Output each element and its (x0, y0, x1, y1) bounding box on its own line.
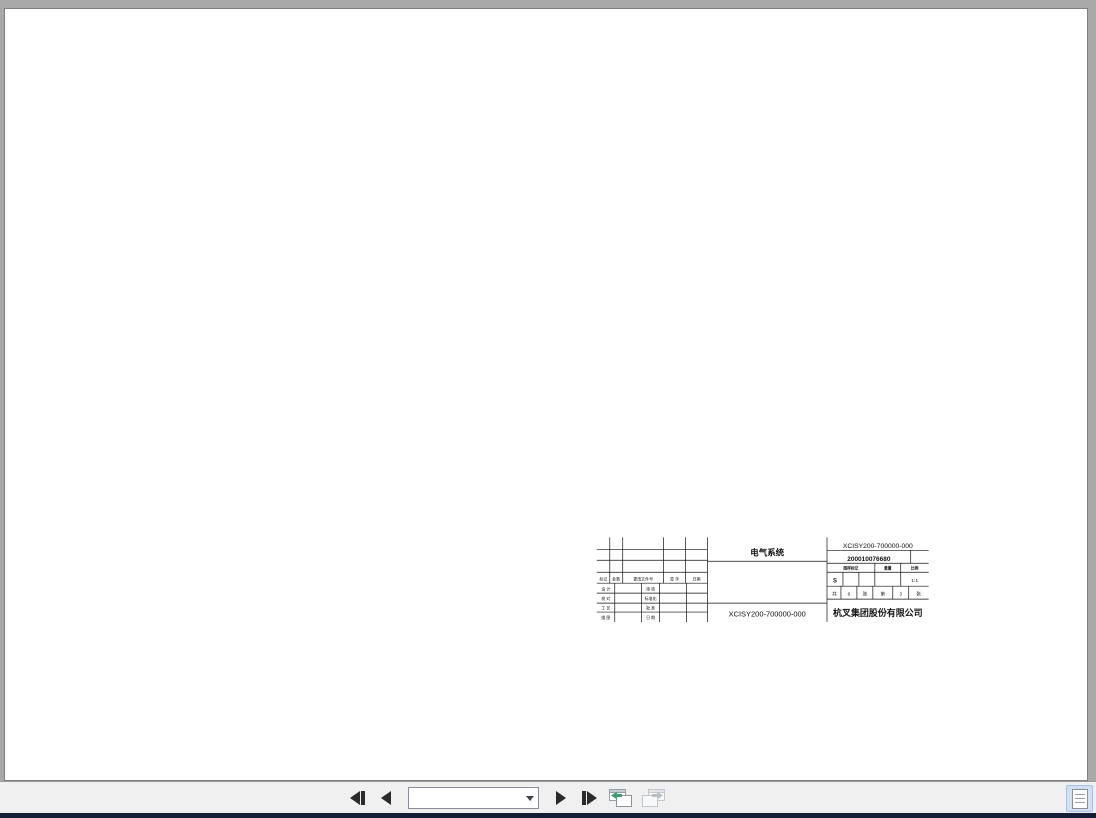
combobox-dropdown[interactable] (522, 788, 538, 808)
svg-text:标准化: 标准化 (645, 596, 657, 601)
first-page-icon (350, 791, 360, 805)
previous-page-button[interactable] (373, 786, 399, 810)
pdf-page-view: 标记处数更改文件号签 字日期设 计审 核校 对标准化工 艺批 准描 图日 期电气… (4, 8, 1088, 781)
svg-text:张: 张 (863, 591, 868, 598)
viewer-toolbar (0, 781, 1096, 813)
screen: { "viewer": { "toolbar": { "page_field":… (0, 0, 1096, 818)
svg-text:重量: 重量 (884, 566, 892, 571)
last-page-button[interactable] (576, 786, 602, 810)
first-page-button[interactable] (345, 786, 371, 810)
svg-text:3: 3 (899, 592, 902, 597)
svg-text:图样标记: 图样标记 (843, 566, 858, 571)
svg-text:电气系统: 电气系统 (750, 547, 784, 557)
svg-text:S: S (833, 579, 837, 585)
svg-text:杭叉集团股份有限公司: 杭叉集团股份有限公司 (833, 607, 923, 618)
svg-text:处数: 处数 (612, 577, 620, 582)
previous-page-icon (381, 791, 391, 805)
svg-text:XCISY200-700000-000: XCISY200-700000-000 (729, 610, 806, 619)
next-page-button[interactable] (548, 786, 574, 810)
svg-text:审 核: 审 核 (646, 587, 655, 592)
chevron-down-icon (526, 796, 534, 801)
svg-text:XCISY200-700000-000: XCISY200-700000-000 (843, 543, 913, 550)
svg-text:签 字: 签 字 (670, 577, 679, 582)
electrical-schematic: 标记处数更改文件号签 字日期设 计审 核校 对标准化工 艺批 准描 图日 期电气… (152, 75, 944, 635)
svg-text:比例: 比例 (911, 566, 919, 571)
next-view-icon (641, 787, 667, 809)
svg-text:标记: 标记 (599, 577, 607, 582)
sidebar-toggle-button[interactable] (1066, 785, 1093, 812)
next-page-icon (556, 791, 566, 805)
svg-text:第: 第 (881, 591, 886, 598)
previous-view-button[interactable] (606, 786, 634, 810)
last-page-icon (587, 791, 597, 805)
svg-text:描 图: 描 图 (601, 615, 610, 620)
previous-view-icon (607, 787, 633, 809)
page-list-icon (1072, 789, 1088, 809)
svg-text:工 艺: 工 艺 (601, 606, 610, 611)
bottom-accent-bar (0, 813, 1096, 818)
svg-text:设 计: 设 计 (601, 587, 610, 592)
svg-text:日 期: 日 期 (646, 615, 655, 620)
svg-text:日期: 日期 (693, 577, 701, 582)
svg-text:200010076680: 200010076680 (847, 556, 891, 563)
svg-text:张: 张 (916, 591, 921, 598)
page-navigation (344, 786, 671, 810)
svg-text:更改文件号: 更改文件号 (633, 577, 653, 582)
svg-text:1:1: 1:1 (911, 578, 918, 584)
svg-text:校 对: 校 对 (601, 596, 610, 601)
svg-text:6: 6 (848, 592, 851, 597)
svg-text:批 准: 批 准 (646, 606, 655, 611)
next-view-button[interactable] (640, 786, 668, 810)
svg-text:共: 共 (832, 591, 837, 598)
page-number-combobox[interactable] (408, 787, 539, 809)
